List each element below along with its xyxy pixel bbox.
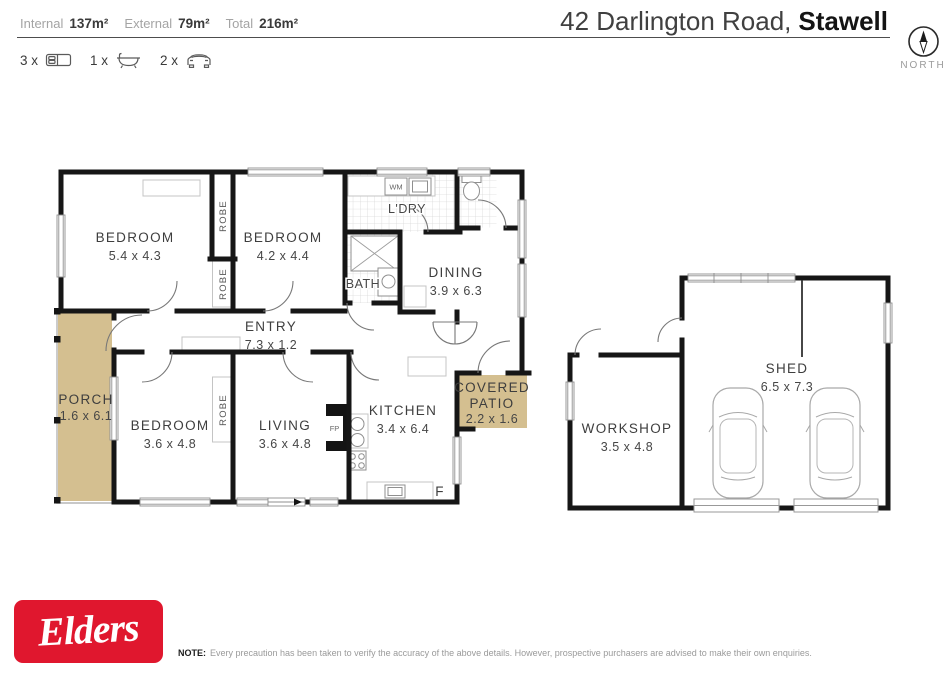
kitchen-label: KITCHEN	[369, 403, 437, 418]
elders-logo-text: Elders	[37, 603, 140, 655]
dining-cabinet	[404, 286, 426, 307]
shed-label: SHED	[766, 361, 809, 376]
bedroom1-furniture	[143, 180, 200, 196]
fp-label: FP	[330, 424, 340, 433]
bedroom2-label: BEDROOM	[244, 230, 323, 245]
laundry-trough-basin	[413, 181, 428, 192]
kitchen-sink2-icon	[385, 485, 405, 498]
robe1-label: ROBE	[218, 200, 229, 232]
kitchen-sink-bowl1	[351, 418, 364, 431]
laundry-label: L'DRY	[388, 202, 426, 216]
entry-dims: 7.3 x 1.2	[245, 338, 297, 352]
note-text: Every precaution has been taken to verif…	[210, 648, 812, 658]
shower-icon	[351, 236, 398, 271]
workshop-dims: 3.5 x 4.8	[601, 440, 653, 454]
patio-dims: 2.2 x 1.6	[466, 412, 518, 426]
elders-logo: Elders	[14, 600, 163, 663]
dining-dims: 3.9 x 6.3	[430, 284, 482, 298]
car-1-icon	[709, 388, 767, 498]
fridge-label: F	[435, 484, 445, 499]
living-dims: 3.6 x 4.8	[259, 437, 311, 451]
wm-label: WM	[389, 183, 402, 192]
robe3-label: ROBE	[218, 394, 229, 426]
bedroom2-dims: 4.2 x 4.4	[257, 249, 309, 263]
porch-area	[58, 313, 112, 501]
patio-label-line2: PATIO	[469, 396, 514, 411]
kitchen-dims: 3.4 x 6.4	[377, 422, 429, 436]
bath-vanity-icon	[378, 268, 399, 296]
floor-plan-svg: BEDROOM 5.4 x 4.3 BEDROOM 4.2 x 4.4 ROBE…	[0, 0, 946, 675]
note-label: NOTE:	[178, 648, 206, 658]
bedroom1-label: BEDROOM	[96, 230, 175, 245]
shed-dims: 6.5 x 7.3	[761, 380, 813, 394]
floor-plan-page: Internal 137m² External 79m² Total 216m²…	[0, 0, 946, 675]
car-2-icon	[806, 388, 864, 498]
porch-dims: 1.6 x 6.1	[60, 409, 112, 423]
workshop-label: WORKSHOP	[582, 421, 673, 436]
dining-label: DINING	[428, 265, 483, 280]
entry-label: ENTRY	[245, 319, 297, 334]
robe2-label: ROBE	[218, 268, 229, 300]
toilet-icon-wc	[462, 176, 481, 200]
bedroom3-dims: 3.6 x 4.8	[144, 437, 196, 451]
living-label: LIVING	[259, 418, 311, 433]
porch-label: PORCH	[58, 392, 113, 407]
kitchen-sink-bowl2	[351, 434, 364, 447]
kitchen-bench-north	[408, 357, 446, 376]
entry-furniture	[182, 337, 240, 350]
bath-label: BATH	[346, 277, 380, 291]
bedroom3-label: BEDROOM	[131, 418, 210, 433]
bedroom1-dims: 5.4 x 4.3	[109, 249, 161, 263]
patio-label-line1: COVERED	[454, 380, 530, 395]
disclaimer-note: NOTE:Every precaution has been taken to …	[178, 648, 812, 658]
